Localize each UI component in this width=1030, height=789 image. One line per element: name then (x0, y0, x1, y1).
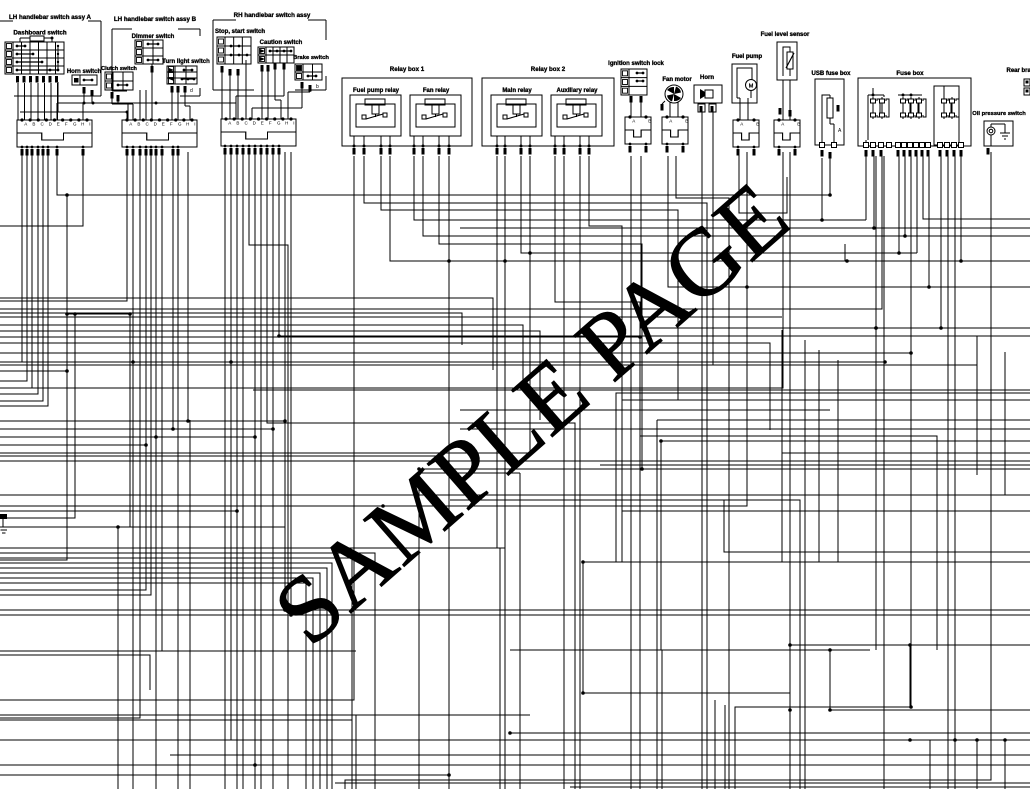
svg-text:Relay box 2: Relay box 2 (531, 66, 566, 73)
svg-text:A: A (632, 119, 635, 124)
svg-text:Stop, start switch: Stop, start switch (215, 29, 265, 35)
svg-text:b: b (316, 84, 319, 90)
svg-text:A: A (129, 122, 132, 127)
svg-text:H: H (81, 122, 84, 127)
svg-text:B: B (685, 119, 688, 124)
svg-text:B: B (32, 122, 35, 127)
svg-text:G: G (73, 122, 77, 127)
svg-text:I: I (89, 122, 90, 127)
svg-text:Auxiliary relay: Auxiliary relay (556, 88, 598, 94)
svg-text:A: A (24, 122, 27, 127)
svg-text:E: E (261, 121, 264, 126)
svg-text:I: I (293, 121, 294, 126)
svg-text:Ignition switch lock: Ignition switch lock (608, 61, 664, 67)
svg-text:B: B (137, 122, 140, 127)
svg-text:H: H (186, 122, 189, 127)
svg-text:Fuel pump relay: Fuel pump relay (353, 88, 400, 94)
svg-text:Horn switch: Horn switch (67, 69, 102, 75)
svg-text:Dimmer switch: Dimmer switch (132, 34, 175, 40)
svg-text:I: I (194, 122, 195, 127)
svg-text:Fuse box: Fuse box (896, 70, 924, 77)
svg-text:Rear brake: Rear brake (1006, 68, 1030, 74)
svg-text:Dashboard switch: Dashboard switch (13, 30, 67, 37)
svg-text:Clutch switch: Clutch switch (101, 66, 137, 72)
svg-text:A: A (669, 119, 672, 124)
svg-text:A: A (740, 122, 743, 127)
svg-text:LH handlebar switch assy B: LH handlebar switch assy B (114, 16, 197, 23)
svg-text:Caution switch: Caution switch (260, 40, 303, 46)
svg-text:G: G (178, 122, 182, 127)
svg-text:RH handlebar switch assy: RH handlebar switch assy (234, 12, 311, 19)
svg-text:Fuel level sensor: Fuel level sensor (761, 32, 810, 38)
svg-text:Fuel pump: Fuel pump (732, 54, 763, 60)
svg-text:Turn light switch: Turn light switch (162, 59, 210, 65)
svg-text:A: A (781, 122, 784, 127)
svg-text:F: F (269, 121, 272, 126)
svg-text:Oil pressure switch: Oil pressure switch (972, 111, 1026, 117)
svg-text:B: B (236, 121, 239, 126)
svg-text:Main relay: Main relay (502, 88, 532, 94)
svg-text:F: F (170, 122, 173, 127)
svg-text:LH handlebar switch assy A: LH handlebar switch assy A (9, 14, 91, 21)
svg-text:Brake switch: Brake switch (293, 55, 329, 61)
svg-text:E: E (162, 122, 165, 127)
svg-text:E: E (57, 122, 60, 127)
svg-text:B: B (756, 122, 759, 127)
svg-text:d: d (190, 88, 193, 94)
svg-text:M: M (749, 84, 754, 90)
svg-text:F: F (65, 122, 68, 127)
svg-text:Fan relay: Fan relay (423, 88, 450, 94)
svg-text:A: A (228, 121, 231, 126)
svg-text:B: B (797, 122, 800, 127)
svg-text:Fan motor: Fan motor (662, 77, 692, 83)
svg-text:Horn: Horn (700, 75, 714, 81)
svg-text:H: H (285, 121, 288, 126)
svg-text:G: G (277, 121, 281, 126)
svg-text:USB fuse box: USB fuse box (811, 71, 851, 77)
svg-text:Relay box 1: Relay box 1 (390, 66, 425, 73)
svg-text:B: B (648, 119, 651, 124)
